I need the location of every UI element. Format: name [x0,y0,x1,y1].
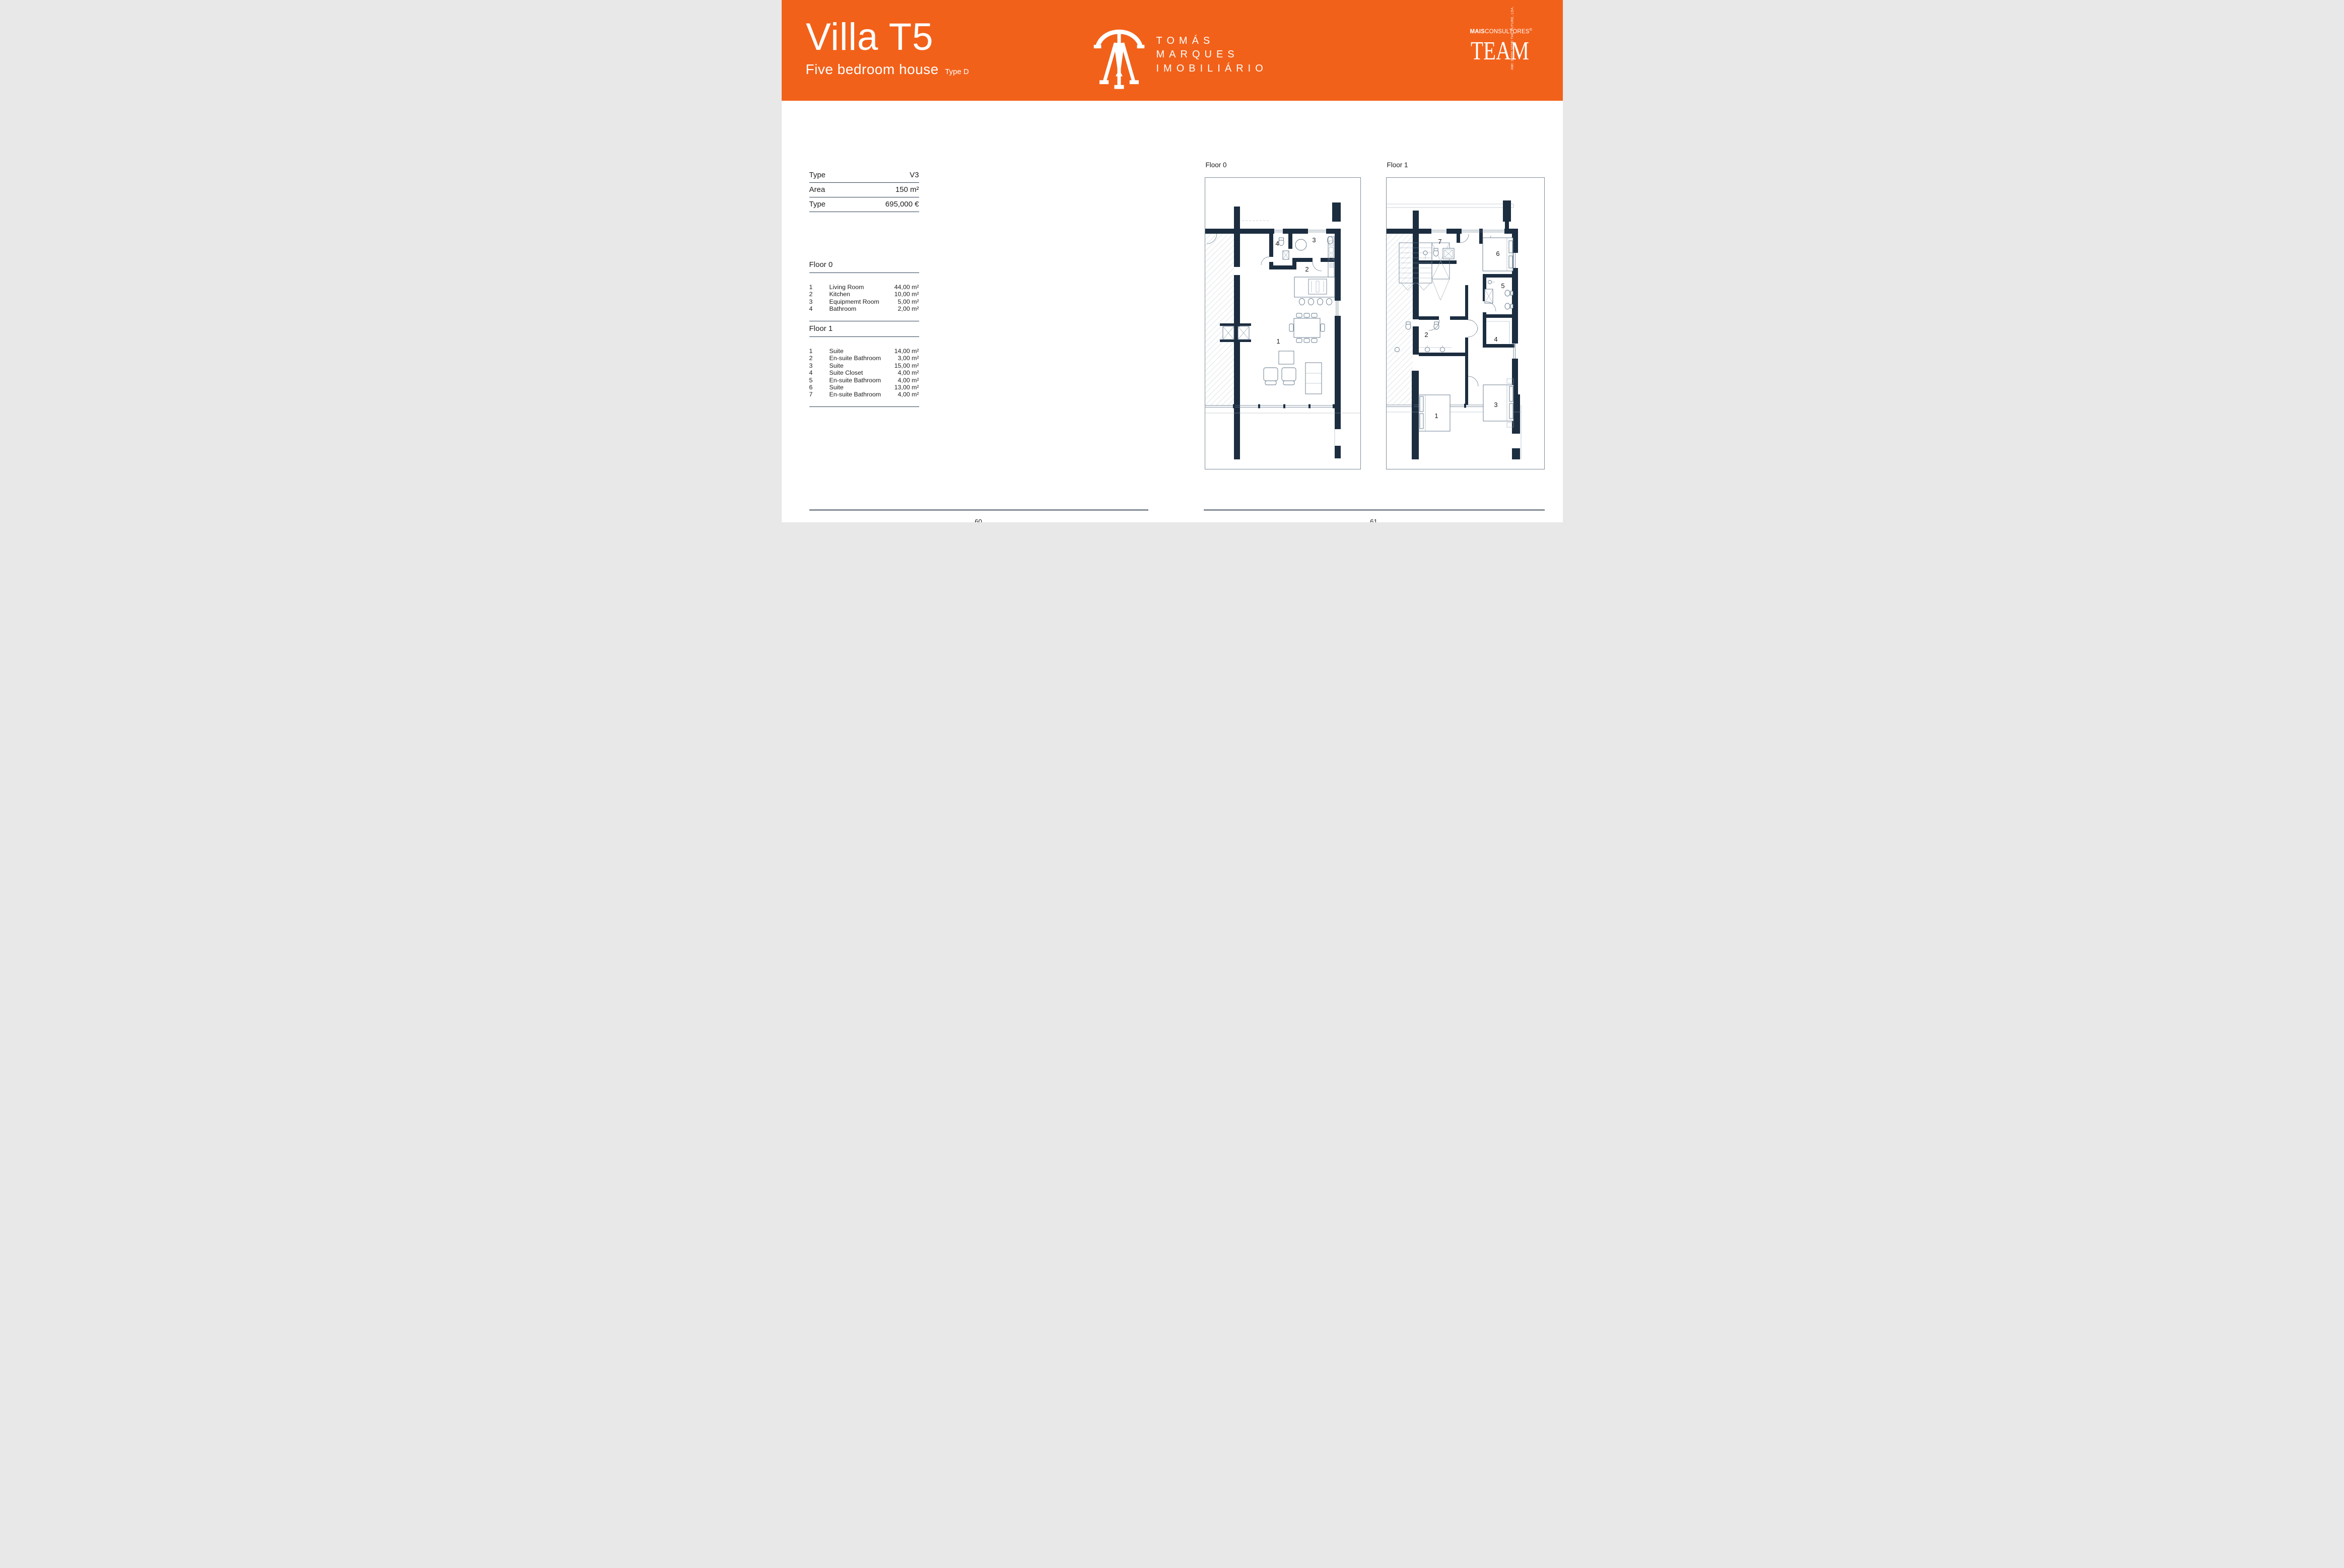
floor0-room-number-1: 1 [1276,337,1280,345]
room-number: 6 [809,384,830,391]
spec-row-price: Type 695,000 € [809,197,919,212]
floor1-room-number-5: 5 [1501,282,1504,290]
floor1-list-title: Floor 1 [809,324,919,336]
team-side-text: AMI: 23990 SEED THE FUTURE, LDA. [1511,6,1514,70]
team-mais-text: MAIS [1470,29,1485,35]
room-area: 10,00 m² [894,291,919,298]
room-row: 5 En-suite Bathroom 4,00 m² [809,377,919,384]
floor0-plan-label: Floor 0 [1206,161,1227,169]
room-area: 5,00 m² [898,298,919,305]
team-logo-top-line: MAISCONSULTORES® [1470,28,1537,35]
room-name: Living Room [830,284,894,291]
floor0-rows: 1 Living Room 44,00 m² 2 Kitchen 10,00 m… [809,284,919,313]
brand-name: TOMÁS MARQUES IMOBILIÁRIO [1156,34,1268,76]
floor1-rows: 1 Suite 14,00 m² 2 En-suite Bathroom 3,0… [809,348,919,398]
divider [809,272,919,273]
room-row: 4 Suite Closet 4,00 m² [809,369,919,376]
room-number: 2 [809,291,830,298]
room-name: En-suite Bathroom [830,355,898,362]
divider [809,336,919,337]
floor1-plan-drawing: 7 6 5 2 4 1 3 [1386,177,1545,469]
brand-logo-group: TOMÁS MARQUES IMOBILIÁRIO [1093,20,1268,90]
room-row: 2 En-suite Bathroom 3,00 m² [809,355,919,362]
room-name: Suite [830,348,894,355]
room-number: 4 [809,369,830,376]
room-number: 1 [809,348,830,355]
room-number: 1 [809,284,830,291]
brand-line-3: IMOBILIÁRIO [1156,62,1268,76]
room-row: 6 Suite 13,00 m² [809,384,919,391]
room-area: 4,00 m² [898,391,919,398]
footer-divider-left [809,509,1148,511]
room-row: 4 Bathroom 2,00 m² [809,305,919,312]
room-name: En-suite Bathroom [830,377,898,384]
spec-row-type: Type V3 [809,168,919,183]
room-name: Suite [830,362,894,369]
spec-value: V3 [910,171,919,179]
room-name: En-suite Bathroom [830,391,898,398]
room-name: Suite Closet [830,369,898,376]
floor1-room-number-1: 1 [1434,412,1438,420]
room-row: 2 Kitchen 10,00 m² [809,291,919,298]
spec-value: 695,000 € [885,200,919,209]
spec-label: Type [809,171,826,179]
spec-label: Area [809,185,825,194]
floor1-room-number-6: 6 [1496,250,1499,257]
room-number: 3 [809,298,830,305]
room-area: 4,00 m² [898,377,919,384]
room-area: 14,00 m² [894,348,919,355]
room-row: 7 En-suite Bathroom 4,00 m² [809,391,919,398]
room-number: 5 [809,377,830,384]
floor1-plan-label: Floor 1 [1387,161,1408,169]
room-area: 15,00 m² [894,362,919,369]
floor1-room-number-7: 7 [1438,238,1441,245]
floor0-room-number-3: 3 [1312,236,1316,244]
spec-value: 150 m² [895,185,919,194]
team-logo: MAISCONSULTORES® TEAM AMI: 23990 SEED TH… [1470,28,1537,63]
registered-mark: ® [1530,28,1532,32]
spec-table: Type V3 Area 150 m² Type 695,000 € [809,168,919,212]
page-subtitle: Five bedroom house [806,61,939,77]
footer-divider-right [1204,509,1545,511]
floor1-room-number-3: 3 [1494,401,1497,408]
floor0-list-title: Floor 0 [809,260,919,272]
room-number: 4 [809,305,830,312]
team-word: TEAM [1471,37,1529,63]
divider [809,406,919,407]
tm-monogram-icon [1093,20,1145,90]
brand-line-2: MARQUES [1156,48,1268,62]
room-row: 3 Equipmemt Room 5,00 m² [809,298,919,305]
floor1-room-list: Floor 1 1 Suite 14,00 m² 2 En-suite Bath… [809,324,919,407]
title-block: Villa T5 Five bedroom house Type D [806,18,969,78]
room-name: Bathroom [830,305,898,312]
brand-line-1: TOMÁS [1156,34,1268,48]
room-area: 2,00 m² [898,305,919,312]
floor0-room-number-2: 2 [1305,265,1308,273]
team-consultores-text: CONSULTORES [1485,29,1530,35]
page-title: Villa T5 [806,18,966,56]
type-label: Type D [945,67,969,76]
page-number-right: 61 [1364,518,1384,522]
room-name: Suite [830,384,894,391]
room-row: 1 Living Room 44,00 m² [809,284,919,291]
floor0-room-list: Floor 0 1 Living Room 44,00 m² 2 Kitchen… [809,260,919,321]
room-row: 1 Suite 14,00 m² [809,348,919,355]
brochure-page: Villa T5 Five bedroom house Type D [782,0,1563,522]
floor0-room-number-4: 4 [1275,240,1279,247]
room-number: 7 [809,391,830,398]
team-wordmark-icon: TEAM [1470,37,1531,63]
room-name: Equipmemt Room [830,298,898,305]
subtitle-row: Five bedroom house Type D [806,61,969,78]
floor0-plan-drawing: 4 3 2 1 [1205,177,1361,469]
floor1-room-number-2: 2 [1424,331,1428,338]
room-number: 3 [809,362,830,369]
header-band: Villa T5 Five bedroom house Type D [782,0,1563,101]
spec-label: Type [809,200,826,209]
page-number-left: 60 [969,518,989,522]
room-area: 3,00 m² [898,355,919,362]
room-area: 44,00 m² [894,284,919,291]
divider [809,321,919,321]
room-name: Kitchen [830,291,894,298]
room-area: 4,00 m² [898,369,919,376]
room-row: 3 Suite 15,00 m² [809,362,919,369]
room-area: 13,00 m² [894,384,919,391]
spec-row-area: Area 150 m² [809,183,919,197]
floor1-room-number-4: 4 [1494,335,1497,343]
room-number: 2 [809,355,830,362]
